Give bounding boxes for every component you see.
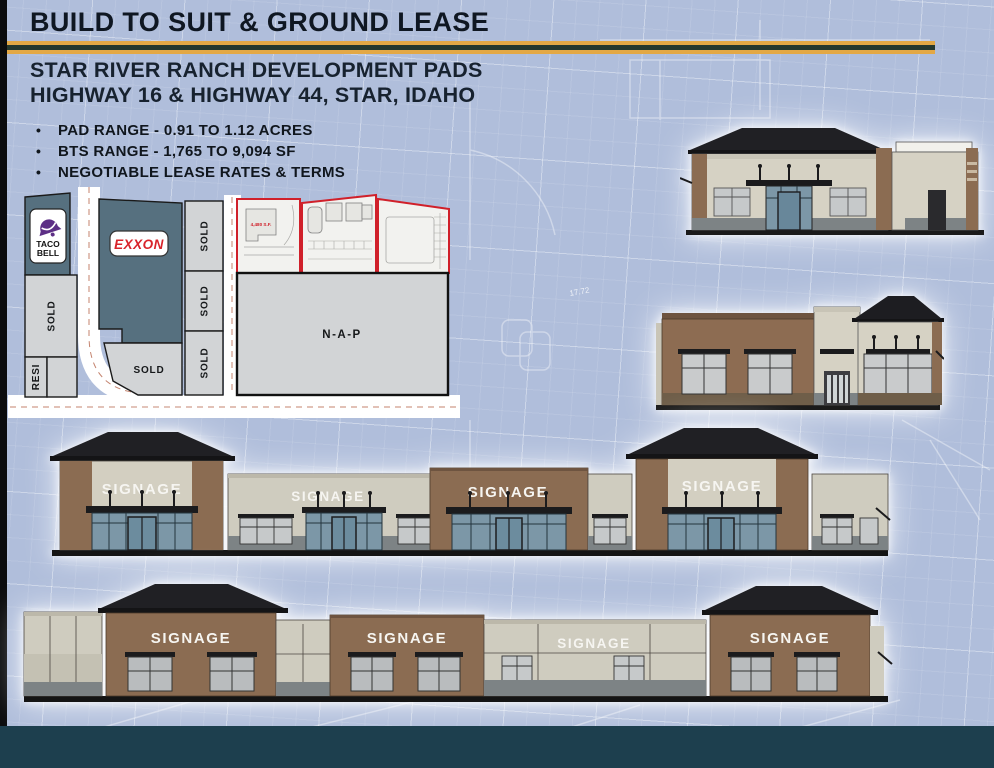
window-lintel [820,514,854,518]
edge-sliver [656,323,662,405]
parcel-sold-right-3: SOLD [185,331,223,395]
right-building-block [892,142,978,230]
title-underline [7,41,935,54]
cornice [814,307,860,312]
sold-label: SOLD [200,348,211,379]
nap-label: N-A-P [322,329,361,341]
entry-storefront [766,186,812,230]
site-plan-map: TACO BELL SOLD RESI EXXON SOLD SOLD SOLD… [8,185,460,418]
roof-overhang [98,608,288,613]
tower-1: SIGNAGE [50,432,235,550]
subtitle-line1: STAR RIVER RANCH DEVELOPMENT PADS [30,58,483,83]
window-bay-1 [588,474,632,550]
strip-elevation-rear: SIGNAGE SIGNAGE [22,582,894,712]
parapet-cap [330,615,484,618]
parcel-resi: RESI [25,357,47,397]
subtitle: STAR RIVER RANCH DEVELOPMENT PADS HIGHWA… [30,58,483,108]
window-right [830,188,866,216]
right-tower-block [852,296,944,405]
bullet-bts-range: BTS RANGE - 1,765 TO 9,094 SF [34,143,345,160]
base-band [858,393,942,405]
base-band [484,680,706,696]
parcel-unlabeled [47,357,77,397]
side-awning [680,178,692,183]
sold-label: SOLD [200,286,211,317]
hip-roof [53,432,232,456]
storefront [452,514,566,550]
window [860,518,878,544]
pad-available-2 [302,195,376,273]
base-band [24,682,102,696]
title-underline-stripe [7,45,935,50]
page-left-border [0,0,7,726]
window-lintel [592,514,628,518]
hip-roof [101,584,284,608]
tower-2: SIGNAGE [702,586,892,696]
service-door [928,190,946,230]
canopy-bar [820,349,854,354]
window-1 [125,652,175,691]
property-bullets: PAD RANGE - 0.91 TO 1.12 ACRES BTS RANGE… [34,118,345,185]
ground-line [686,230,984,235]
inline-bay-2: SIGNAGE [484,620,706,696]
gap-bay [276,620,330,696]
cornice [692,154,888,159]
signage-label: SIGNAGE [557,636,630,651]
roof-overhang [688,150,888,154]
sold-label: SOLD [134,365,165,376]
roof-overhang [626,454,818,459]
pilaster-accent-slats [967,162,977,181]
window-2 [207,652,257,691]
parcel-exxon: EXXON [99,199,182,343]
left-building-block [680,128,892,230]
pad1-square-footage: 4,480 S.F. [251,222,272,227]
sold-label: SOLD [200,221,211,252]
ground-line [656,405,940,410]
pad-available-1: 4,480 S.F. [237,199,300,273]
entry-door [824,371,850,405]
left-building-block [656,313,814,405]
sold-label: SOLD [47,301,58,332]
window-2 [794,652,840,691]
hip-roof [629,428,815,454]
inline-bay-1: SIGNAGE [228,474,434,550]
roof-overhang [50,456,235,461]
cornice [228,474,430,478]
ground-line [52,550,888,556]
parapet-cap [662,313,814,319]
signage-label: SIGNAGE [367,630,447,647]
exxon-logo: EXXON [110,231,168,256]
elevation-single-tenant-b [652,293,944,421]
parapet-band [896,142,972,152]
signage-label: SIGNAGE [291,489,364,504]
window-2 [744,349,796,394]
taco-bell-logo: TACO BELL [30,209,66,263]
elevation-single-tenant-a [680,122,990,244]
bullet-lease-terms: NEGOTIABLE LEASE RATES & TERMS [34,164,345,181]
window-1 [348,652,396,691]
pilaster-brown [192,461,223,550]
window-1 [728,652,774,691]
parcel-taco-bell: TACO BELL [25,193,70,275]
storefront [668,514,776,550]
edge-sliver [870,626,884,696]
blueprint-dimension-note: 17.72 [569,286,591,298]
lower-panels [24,654,102,682]
roof-overhang [702,610,878,615]
exxon-text: EXXON [114,237,164,252]
brown-bay-2: SIGNAGE [330,615,484,696]
page-title: BUILD TO SUIT & GROUND LEASE [30,7,489,38]
ground-line [24,696,888,702]
hip-roof [854,296,942,319]
window-group-left [238,514,294,544]
signage-label: SIGNAGE [151,630,231,647]
pilaster-brown [60,461,92,550]
pad-available-3 [378,199,449,273]
window-group-right [396,514,434,544]
end-bay-1 [812,474,890,550]
pilaster-brown [966,148,978,230]
window-left [714,188,750,216]
brown-bay-1: SIGNAGE [430,468,588,550]
base-band [662,393,814,405]
resi-label: RESI [31,364,42,391]
bullet-pad-range: PAD RANGE - 0.91 TO 1.12 ACRES [34,122,345,139]
pilaster-brown [932,322,942,405]
parcel-nap: N-A-P [237,273,448,395]
taco-bell-text-line2: BELL [37,248,59,258]
signage-label: SIGNAGE [750,630,830,647]
end-bay-left [24,612,102,696]
entry-door [778,192,800,230]
tower-2: SIGNAGE [626,428,818,550]
parcel-sold-left: SOLD [25,275,77,357]
hip-roof [705,586,875,610]
parcel-sold-right-2: SOLD [185,271,223,331]
pilaster-divider [876,148,892,230]
window-1 [678,349,730,394]
tower-1: SIGNAGE [98,584,288,696]
footer-bar [0,726,994,768]
base-band [276,682,330,696]
window-wall [864,354,932,394]
strip-elevation-front: SIGNAGE SIGNAGE [50,428,892,564]
subtitle-line2: HIGHWAY 16 & HIGHWAY 44, STAR, IDAHO [30,83,483,108]
parapet-cap [430,468,588,471]
parcel-sold-right-1: SOLD [185,201,223,271]
window-2 [415,652,463,691]
cornice [24,612,102,616]
cornice [484,620,706,624]
storefront [92,513,192,550]
hip-roof [690,128,885,150]
